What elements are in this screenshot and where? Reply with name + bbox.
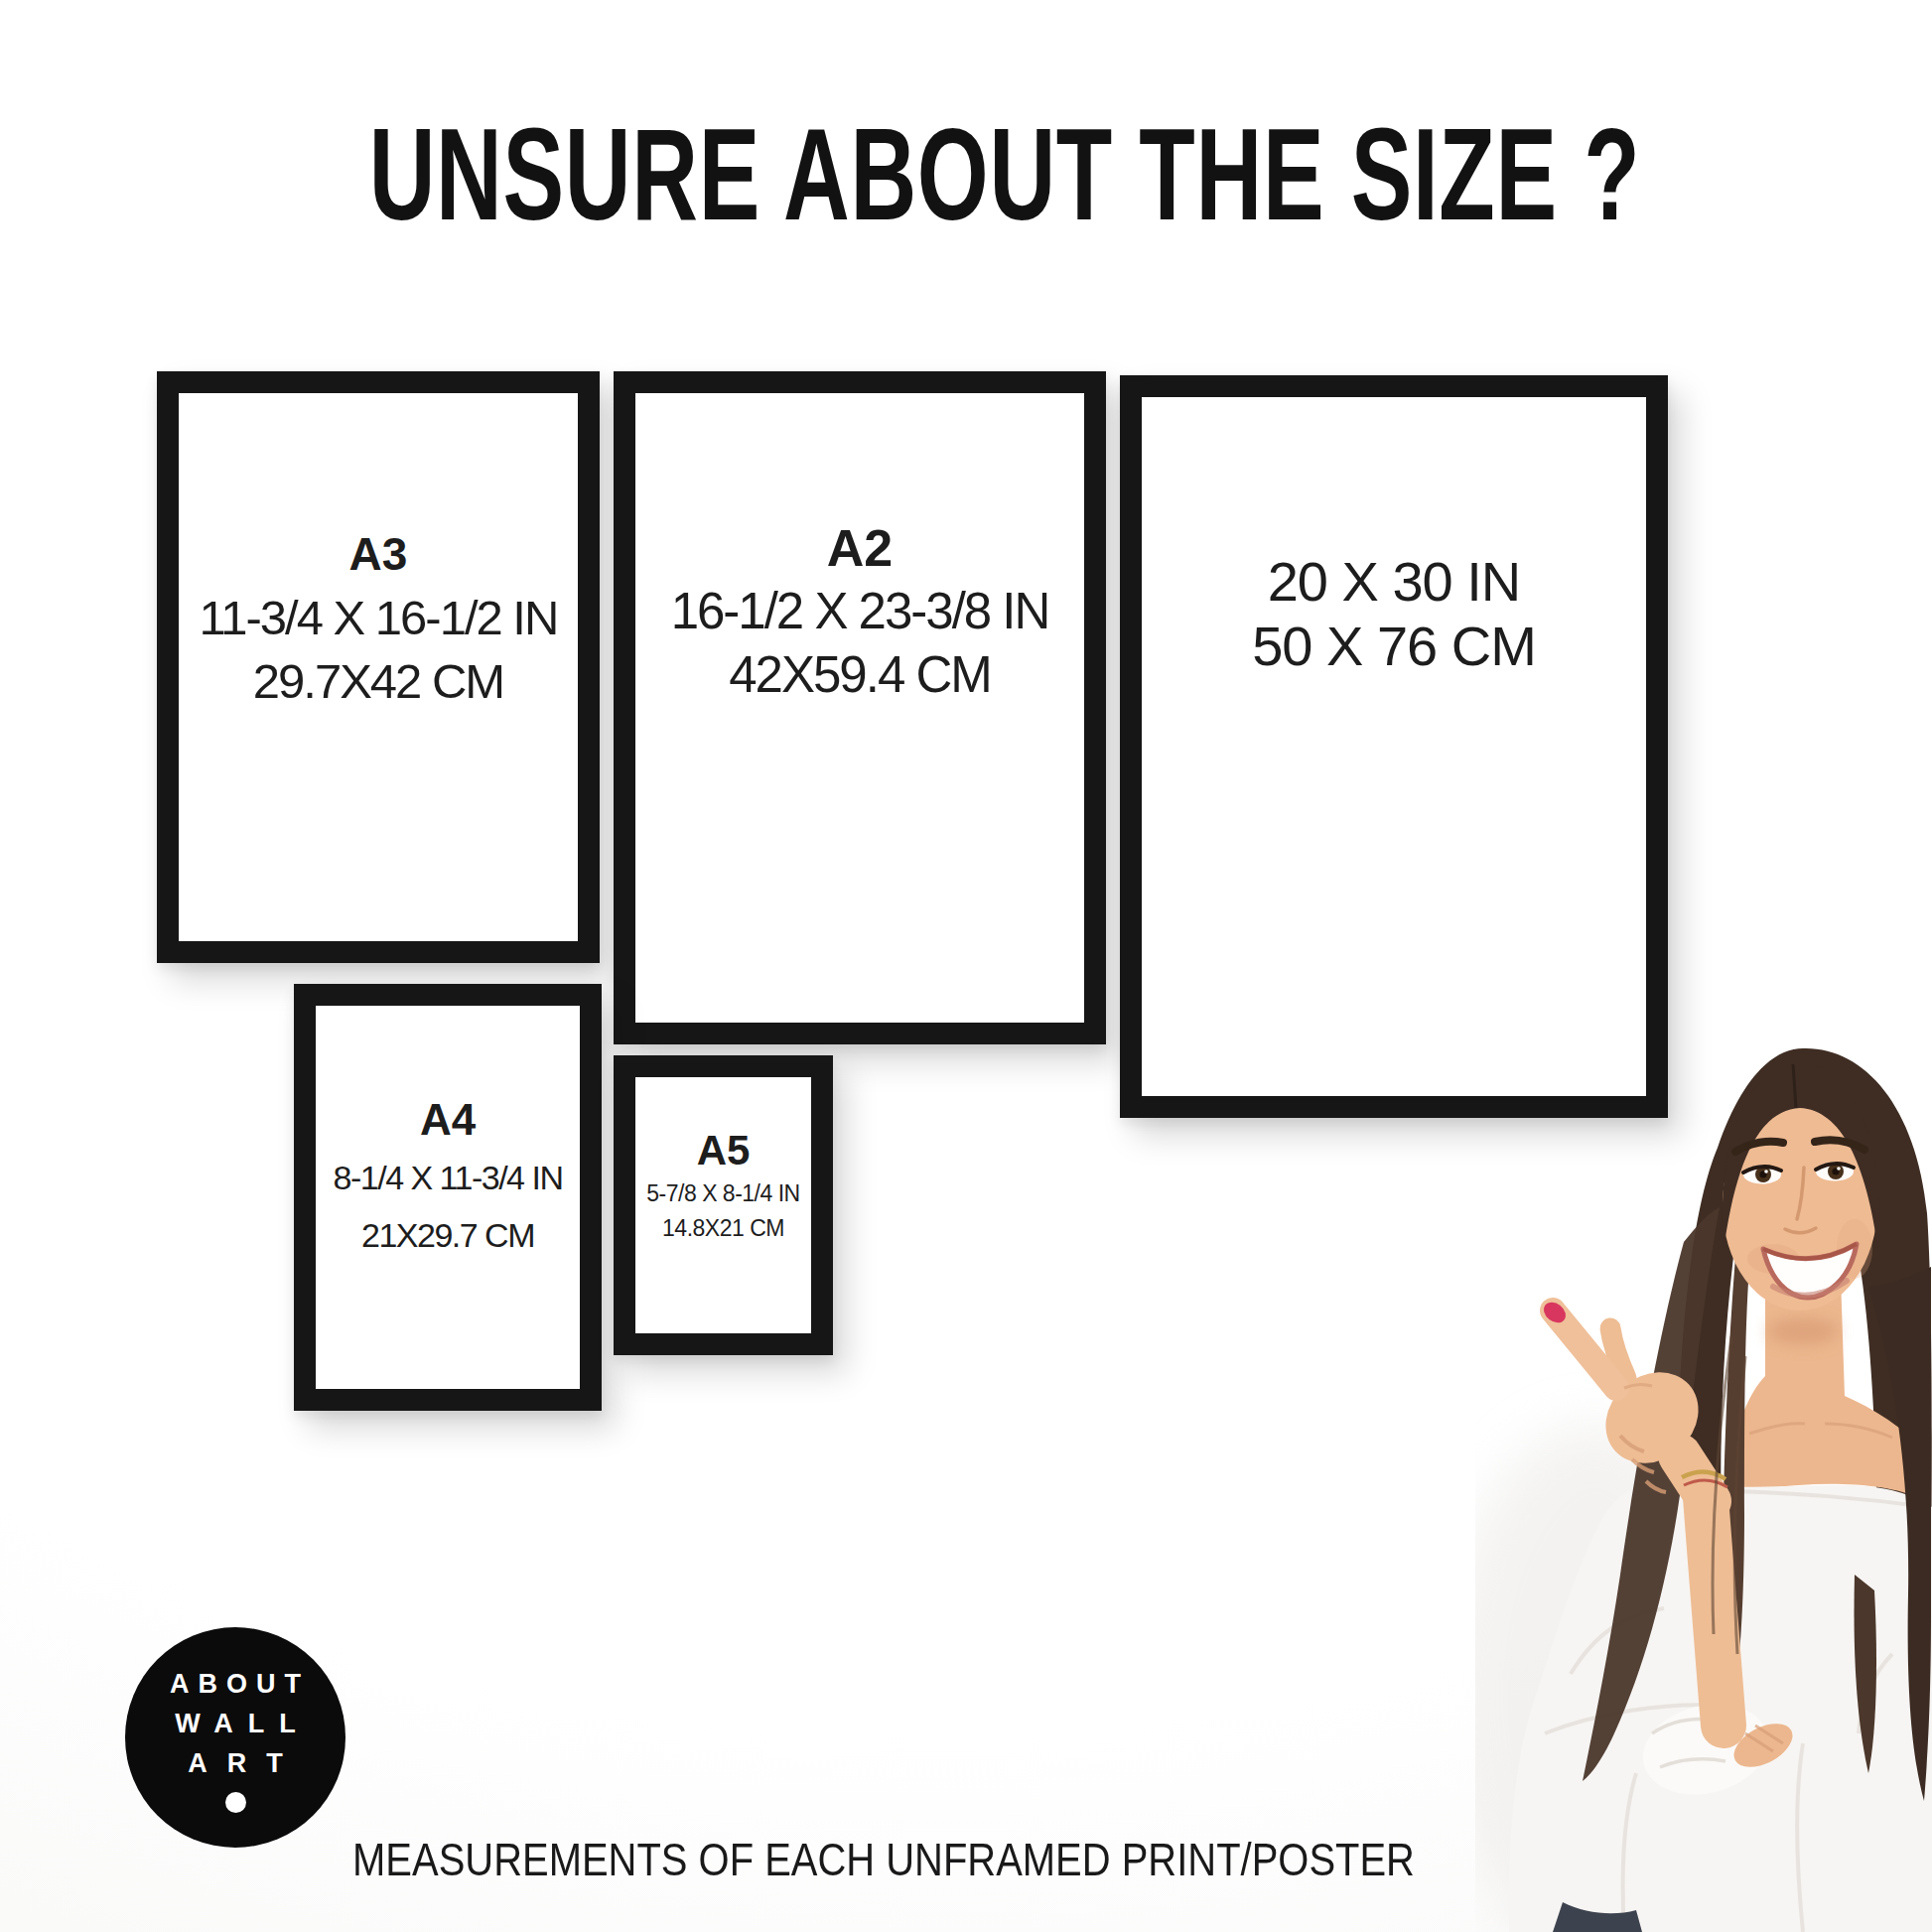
frame-size-inches: 20 X 30 IN (1146, 549, 1642, 614)
frame-size-inches: 16-1/2 X 23-3/8 IN (639, 580, 1080, 643)
frame-a3-text: A3 11-3/4 X 16-1/2 IN 29.7X42 CM (183, 522, 574, 713)
frame-20x30: 20 X 30 IN 50 X 76 CM (1120, 375, 1668, 1118)
frame-a4-text: A4 8-1/4 X 11-3/4 IN 21X29.7 CM (320, 1091, 576, 1264)
frame-size-label: A2 (639, 516, 1080, 580)
logo-text-line: ABOUT (161, 1664, 310, 1704)
logo-text-line: ART (168, 1743, 303, 1783)
frame-size-cm: 29.7X42 CM (183, 649, 574, 713)
logo-text-line: WALL (160, 1704, 310, 1743)
frame-20x30-text: 20 X 30 IN 50 X 76 CM (1146, 549, 1642, 678)
frame-size-inches: 8-1/4 X 11-3/4 IN (320, 1149, 576, 1206)
frame-size-cm: 50 X 76 CM (1146, 614, 1642, 678)
right-eye (1816, 1163, 1854, 1181)
frame-size-inches: 5-7/8 X 8-1/4 IN (639, 1176, 807, 1211)
frame-size-cm: 42X59.4 CM (639, 643, 1080, 707)
frame-size-cm: 21X29.7 CM (320, 1206, 576, 1264)
poster-size-guide: UNSURE ABOUT THE SIZE ? A3 11-3/4 X 16-1… (0, 0, 1932, 1932)
frame-size-label: A3 (183, 522, 574, 586)
logo-dot (225, 1792, 246, 1813)
frame-size-inches: 11-3/4 X 16-1/2 IN (183, 586, 574, 649)
frame-a5-text: A5 5-7/8 X 8-1/4 IN 14.8X21 CM (639, 1125, 807, 1246)
frame-a5: A5 5-7/8 X 8-1/4 IN 14.8X21 CM (614, 1055, 833, 1355)
frame-a4: A4 8-1/4 X 11-3/4 IN 21X29.7 CM (294, 984, 602, 1411)
model-photo (1475, 1038, 1932, 1932)
frame-size-cm: 14.8X21 CM (639, 1211, 807, 1246)
frame-a2-text: A2 16-1/2 X 23-3/8 IN 42X59.4 CM (639, 516, 1080, 707)
chin-shadow (1767, 1318, 1839, 1344)
left-eye (1743, 1166, 1781, 1184)
frame-size-label: A5 (639, 1125, 807, 1176)
frame-size-label: A4 (320, 1091, 576, 1149)
page-title: UNSURE ABOUT THE SIZE ? (302, 99, 1709, 249)
brand-logo: ABOUT WALL ART (125, 1627, 345, 1848)
frame-a3: A3 11-3/4 X 16-1/2 IN 29.7X42 CM (157, 371, 600, 963)
frame-a2: A2 16-1/2 X 23-3/8 IN 42X59.4 CM (614, 371, 1106, 1044)
